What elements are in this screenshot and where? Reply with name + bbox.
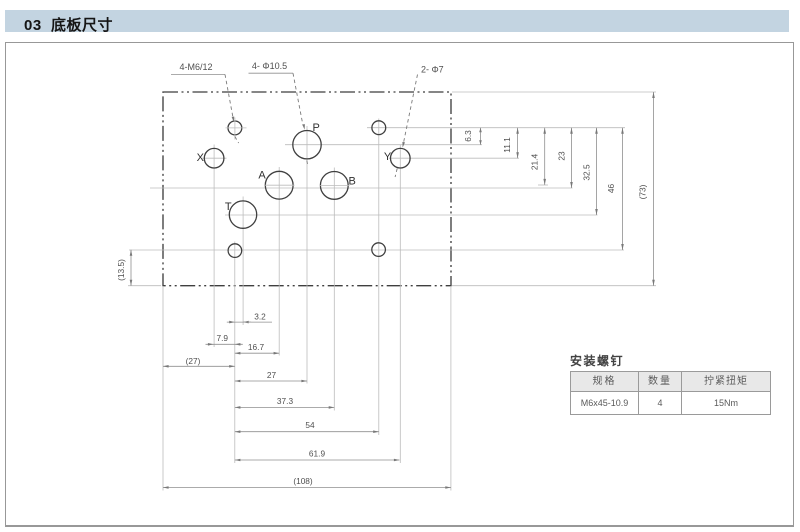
svg-text:27: 27	[267, 370, 277, 380]
svg-text:(27): (27)	[186, 356, 201, 366]
svg-text:Y: Y	[384, 151, 392, 163]
svg-text:T: T	[225, 201, 232, 213]
svg-text:7.9: 7.9	[217, 333, 229, 343]
svg-text:23: 23	[557, 151, 567, 161]
svg-text:(73): (73)	[637, 184, 647, 199]
svg-text:4-M6/12: 4-M6/12	[179, 62, 212, 72]
svg-text:(108): (108)	[293, 476, 313, 486]
svg-text:46: 46	[606, 184, 616, 194]
svg-text:37.3: 37.3	[277, 396, 294, 406]
svg-text:(13.5): (13.5)	[116, 259, 126, 281]
svg-text:54: 54	[305, 420, 315, 430]
svg-text:A: A	[258, 170, 266, 182]
svg-text:21.4: 21.4	[530, 154, 540, 171]
svg-text:4- Φ10.5: 4- Φ10.5	[252, 61, 287, 71]
svg-text:32.5: 32.5	[581, 164, 591, 181]
svg-text:61.9: 61.9	[309, 448, 326, 458]
svg-text:3.2: 3.2	[254, 311, 266, 321]
svg-text:6.3: 6.3	[463, 130, 473, 142]
svg-text:P: P	[313, 122, 320, 134]
svg-text:16.7: 16.7	[248, 342, 265, 352]
svg-text:2- Φ7: 2- Φ7	[421, 65, 444, 75]
svg-text:11.1: 11.1	[502, 137, 512, 153]
svg-text:X: X	[197, 152, 205, 164]
svg-text:B: B	[349, 176, 356, 188]
